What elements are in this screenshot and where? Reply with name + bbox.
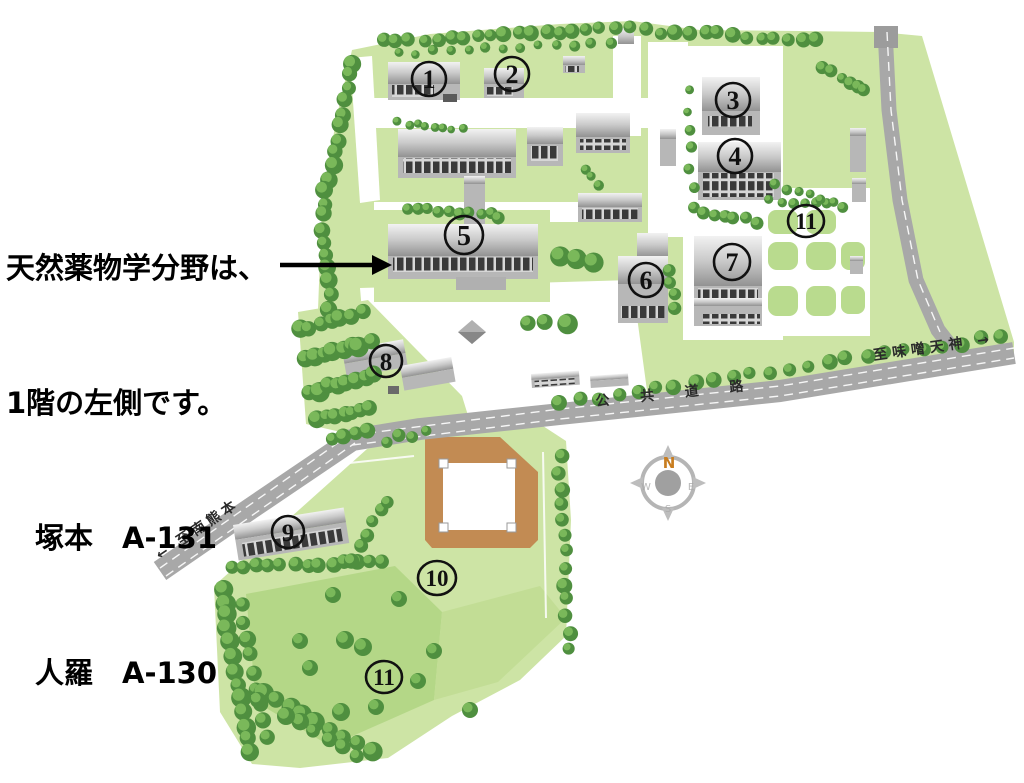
- svg-text:11: 11: [795, 209, 817, 234]
- svg-text:4: 4: [729, 142, 742, 171]
- svg-text:3: 3: [727, 86, 740, 115]
- svg-text:8: 8: [380, 349, 393, 376]
- svg-text:2: 2: [506, 60, 519, 89]
- svg-text:1: 1: [423, 65, 436, 94]
- annotation-block: 天然薬物学分野は、 1階の左側です。 塚本 A-131 人羅 A-130: [6, 156, 326, 783]
- svg-text:6: 6: [640, 266, 653, 295]
- annotation-line-4: 人羅 A-130: [6, 651, 326, 696]
- svg-text:10: 10: [426, 566, 449, 591]
- compass-east-label: E: [688, 482, 694, 493]
- compass-west-label: W: [641, 482, 651, 493]
- annotation-line-3: 塚本 A-131: [6, 516, 326, 561]
- svg-text:11: 11: [373, 665, 395, 690]
- compass-south-label: S: [665, 504, 671, 515]
- svg-text:7: 7: [726, 248, 739, 277]
- compass: N W E S: [630, 445, 706, 521]
- compass-north-label: N: [663, 454, 676, 472]
- road-end-block: [874, 26, 898, 48]
- annotation-line-1: 天然薬物学分野は、: [6, 246, 326, 291]
- svg-text:5: 5: [457, 221, 471, 252]
- annotation-line-2: 1階の左側です。: [6, 381, 326, 426]
- campus-map-screenshot: 天然薬物学分野は、 1階の左側です。 塚本 A-131 人羅 A-130: [0, 0, 1024, 783]
